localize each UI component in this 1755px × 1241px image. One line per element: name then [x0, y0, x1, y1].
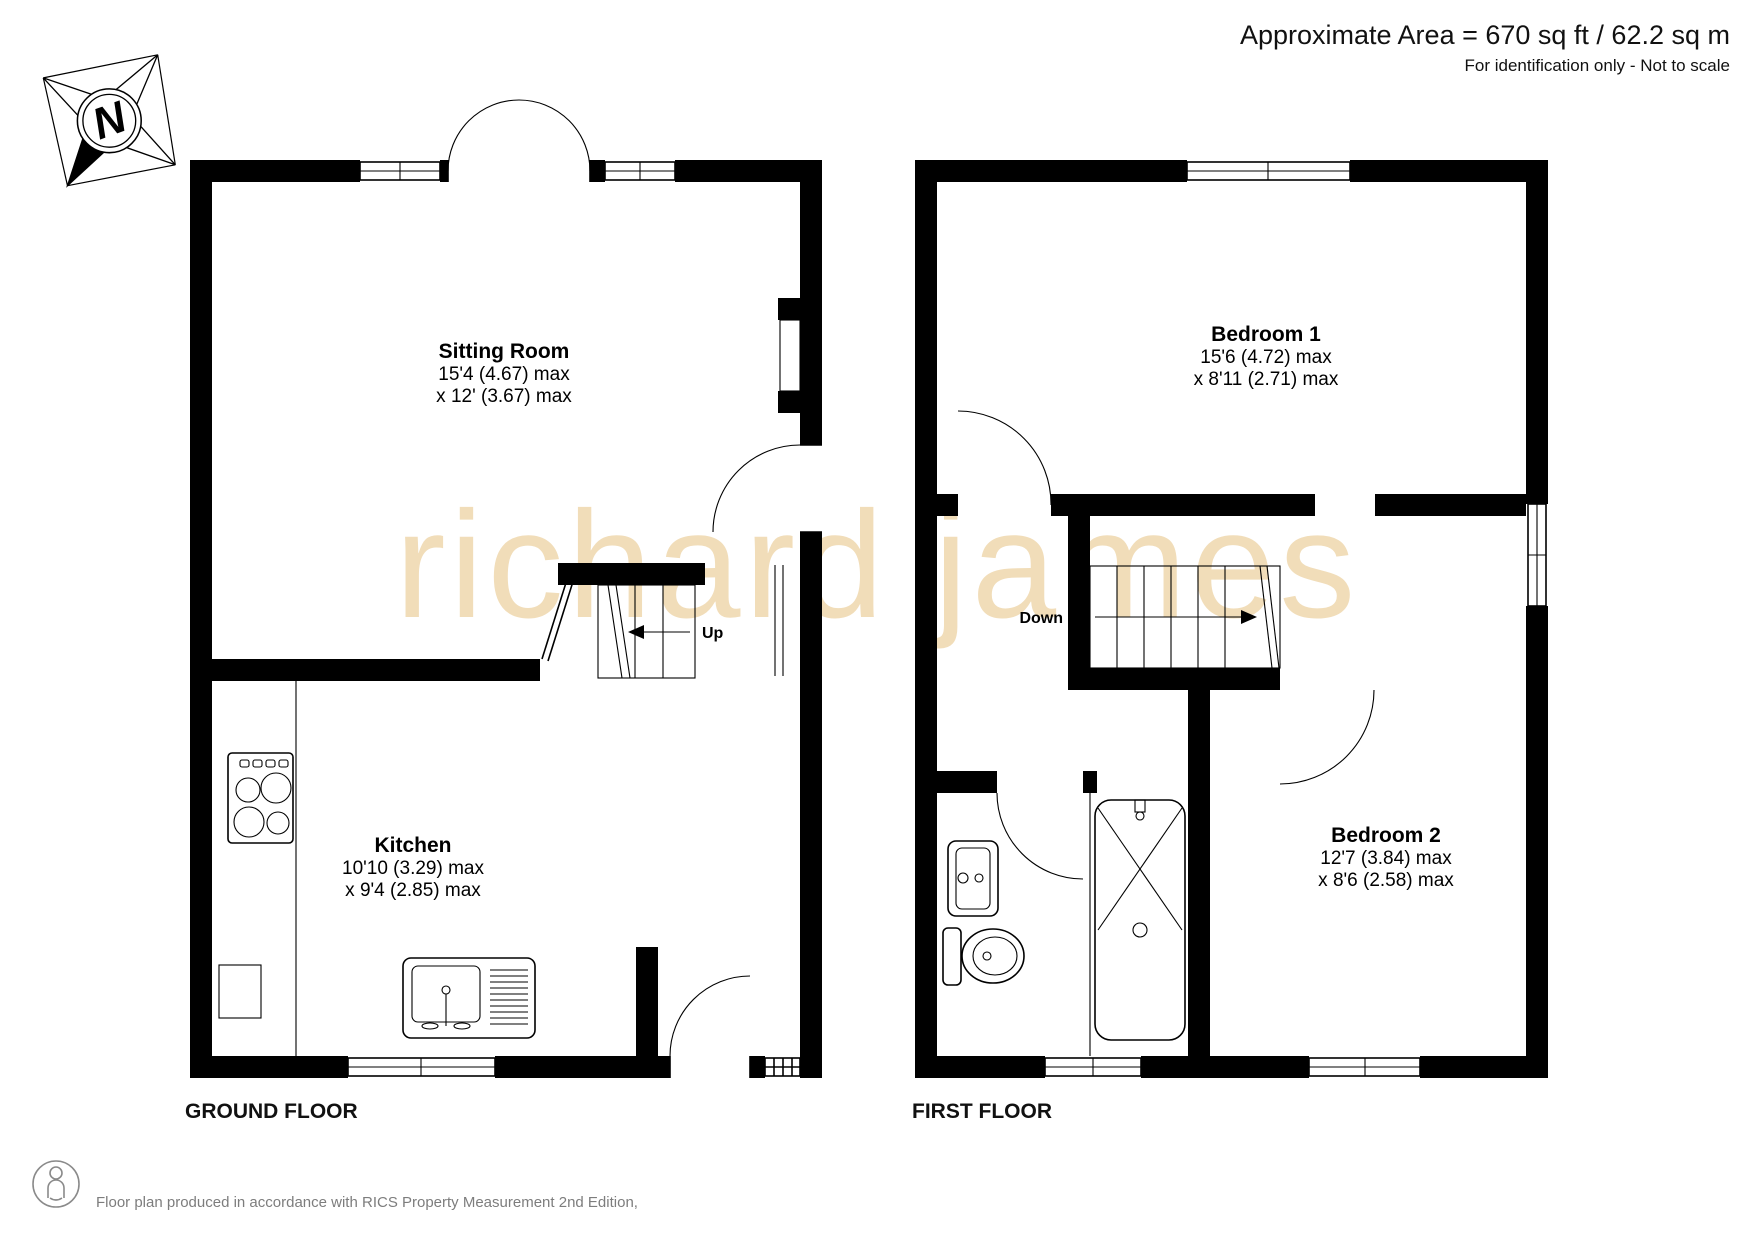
ground-floor-caption: GROUND FLOOR: [185, 1100, 358, 1124]
hall-wall-stub: [636, 947, 658, 1056]
svg-text:Sitting Room: Sitting Room: [439, 340, 570, 363]
room-label-sitting-room: Sitting Room 15'4 (4.67) max x 12' (3.67…: [436, 340, 572, 407]
chimney-breast: [778, 298, 802, 413]
kitchen-appliance: [219, 965, 261, 1018]
stairwell-wall-left: [1068, 516, 1090, 690]
svg-text:x 12' (3.67) max: x 12' (3.67) max: [436, 386, 572, 407]
svg-text:12'7 (3.84) max: 12'7 (3.84) max: [1320, 848, 1452, 869]
person-icon: [30, 1158, 82, 1210]
bathtub-icon: [1095, 800, 1185, 1040]
sitting-room-window-right: [605, 162, 675, 180]
svg-text:15'4 (4.67) max: 15'4 (4.67) max: [438, 364, 570, 385]
svg-text:x 9'4 (2.85) max: x 9'4 (2.85) max: [345, 880, 481, 901]
kitchen-divider-wall: [212, 659, 540, 681]
stairs-up-label: Up: [702, 625, 724, 642]
bathroom-door: [997, 793, 1083, 879]
bedroom2-side-window: [1528, 504, 1546, 606]
bathroom-bedroom2-wall: [1188, 690, 1210, 1056]
toilet-icon: [943, 928, 1024, 985]
bedroom1-wall-right: [1375, 494, 1526, 516]
approximate-area-text: Approximate Area = 670 sq ft / 62.2 sq m: [1240, 20, 1730, 51]
svg-text:x 8'11 (2.71) max: x 8'11 (2.71) max: [1194, 369, 1339, 390]
hob-icon: [228, 753, 293, 843]
compass-north-icon: N: [40, 35, 205, 200]
room-label-kitchen: Kitchen 10'10 (3.29) max x 9'4 (2.85) ma…: [342, 834, 484, 901]
sitting-room-window-left: [360, 162, 440, 180]
first-floor-plan: Down: [915, 160, 1548, 1078]
svg-text:10'10 (3.29) max: 10'10 (3.29) max: [342, 858, 484, 879]
staircase-down: [1090, 566, 1280, 668]
small-grid-window: [765, 1058, 800, 1076]
bathroom-sink-icon: [948, 841, 998, 916]
first-floor-caption: FIRST FLOOR: [912, 1100, 1052, 1124]
footer-line1: Floor plan produced in accordance with R…: [96, 1194, 778, 1212]
bedroom1-door: [958, 411, 1051, 505]
bathroom-window: [1045, 1058, 1141, 1076]
bedroom2-door: [1280, 690, 1374, 784]
room-label-bedroom1: Bedroom 1 15'6 (4.72) max x 8'11 (2.71) …: [1194, 323, 1339, 390]
back-door: [670, 976, 750, 1078]
stairs-wall: [558, 563, 705, 585]
ground-floor-plan: Up: [190, 90, 822, 1078]
kitchen-sink-icon: [403, 958, 535, 1038]
bedroom2-window: [1309, 1058, 1420, 1076]
room-label-bedroom2: Bedroom 2 12'7 (3.84) max x 8'6 (2.58) m…: [1318, 824, 1454, 891]
footer: Floor plan produced in accordance with R…: [30, 1158, 778, 1241]
svg-text:x 8'6 (2.58) max: x 8'6 (2.58) max: [1318, 870, 1454, 891]
bathroom-wall: [937, 771, 997, 793]
identification-note: For identification only - Not to scale: [1464, 56, 1730, 76]
svg-text:Bedroom 2: Bedroom 2: [1331, 824, 1441, 847]
kitchen-window: [348, 1058, 495, 1076]
bedroom1-wall: [1051, 494, 1315, 516]
svg-text:Kitchen: Kitchen: [374, 834, 451, 857]
sitting-room-door: [713, 445, 822, 532]
bedroom1-window: [1187, 162, 1350, 180]
svg-text:Bedroom 1: Bedroom 1: [1211, 323, 1321, 346]
stairs-down-label: Down: [1019, 610, 1063, 627]
svg-text:15'6 (4.72) max: 15'6 (4.72) max: [1200, 347, 1332, 368]
french-doors: [448, 100, 590, 182]
floorplan-page: Approximate Area = 670 sq ft / 62.2 sq m…: [0, 0, 1755, 1241]
stairwell-wall-bottom: [1068, 668, 1280, 690]
